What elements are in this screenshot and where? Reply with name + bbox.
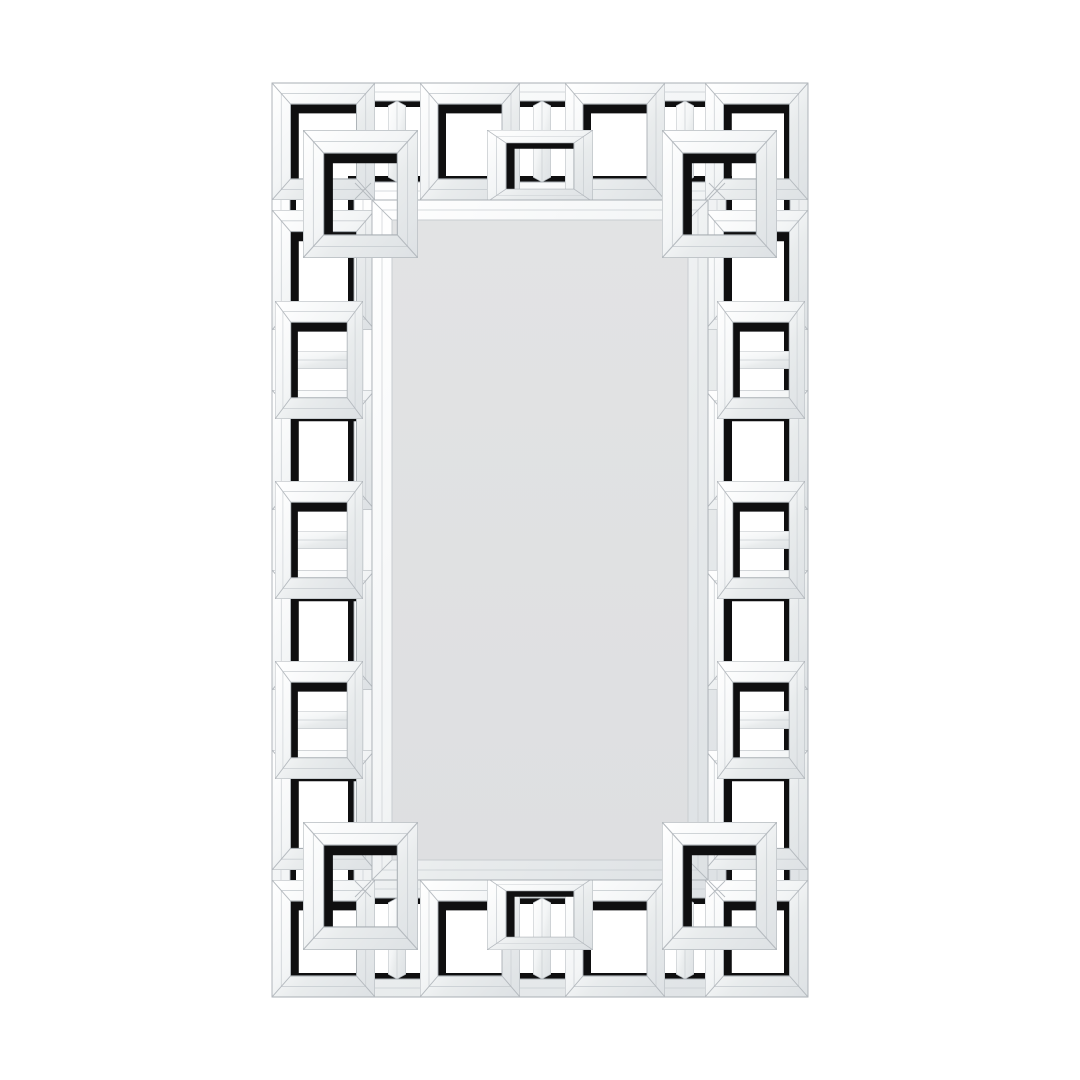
product-photo-canvas	[0, 0, 1080, 1080]
greek-key-wall-mirror	[0, 0, 1080, 1080]
fretwork-left-border	[272, 210, 375, 870]
fretwork-right-border	[705, 210, 808, 870]
mirror-plate	[392, 220, 688, 860]
